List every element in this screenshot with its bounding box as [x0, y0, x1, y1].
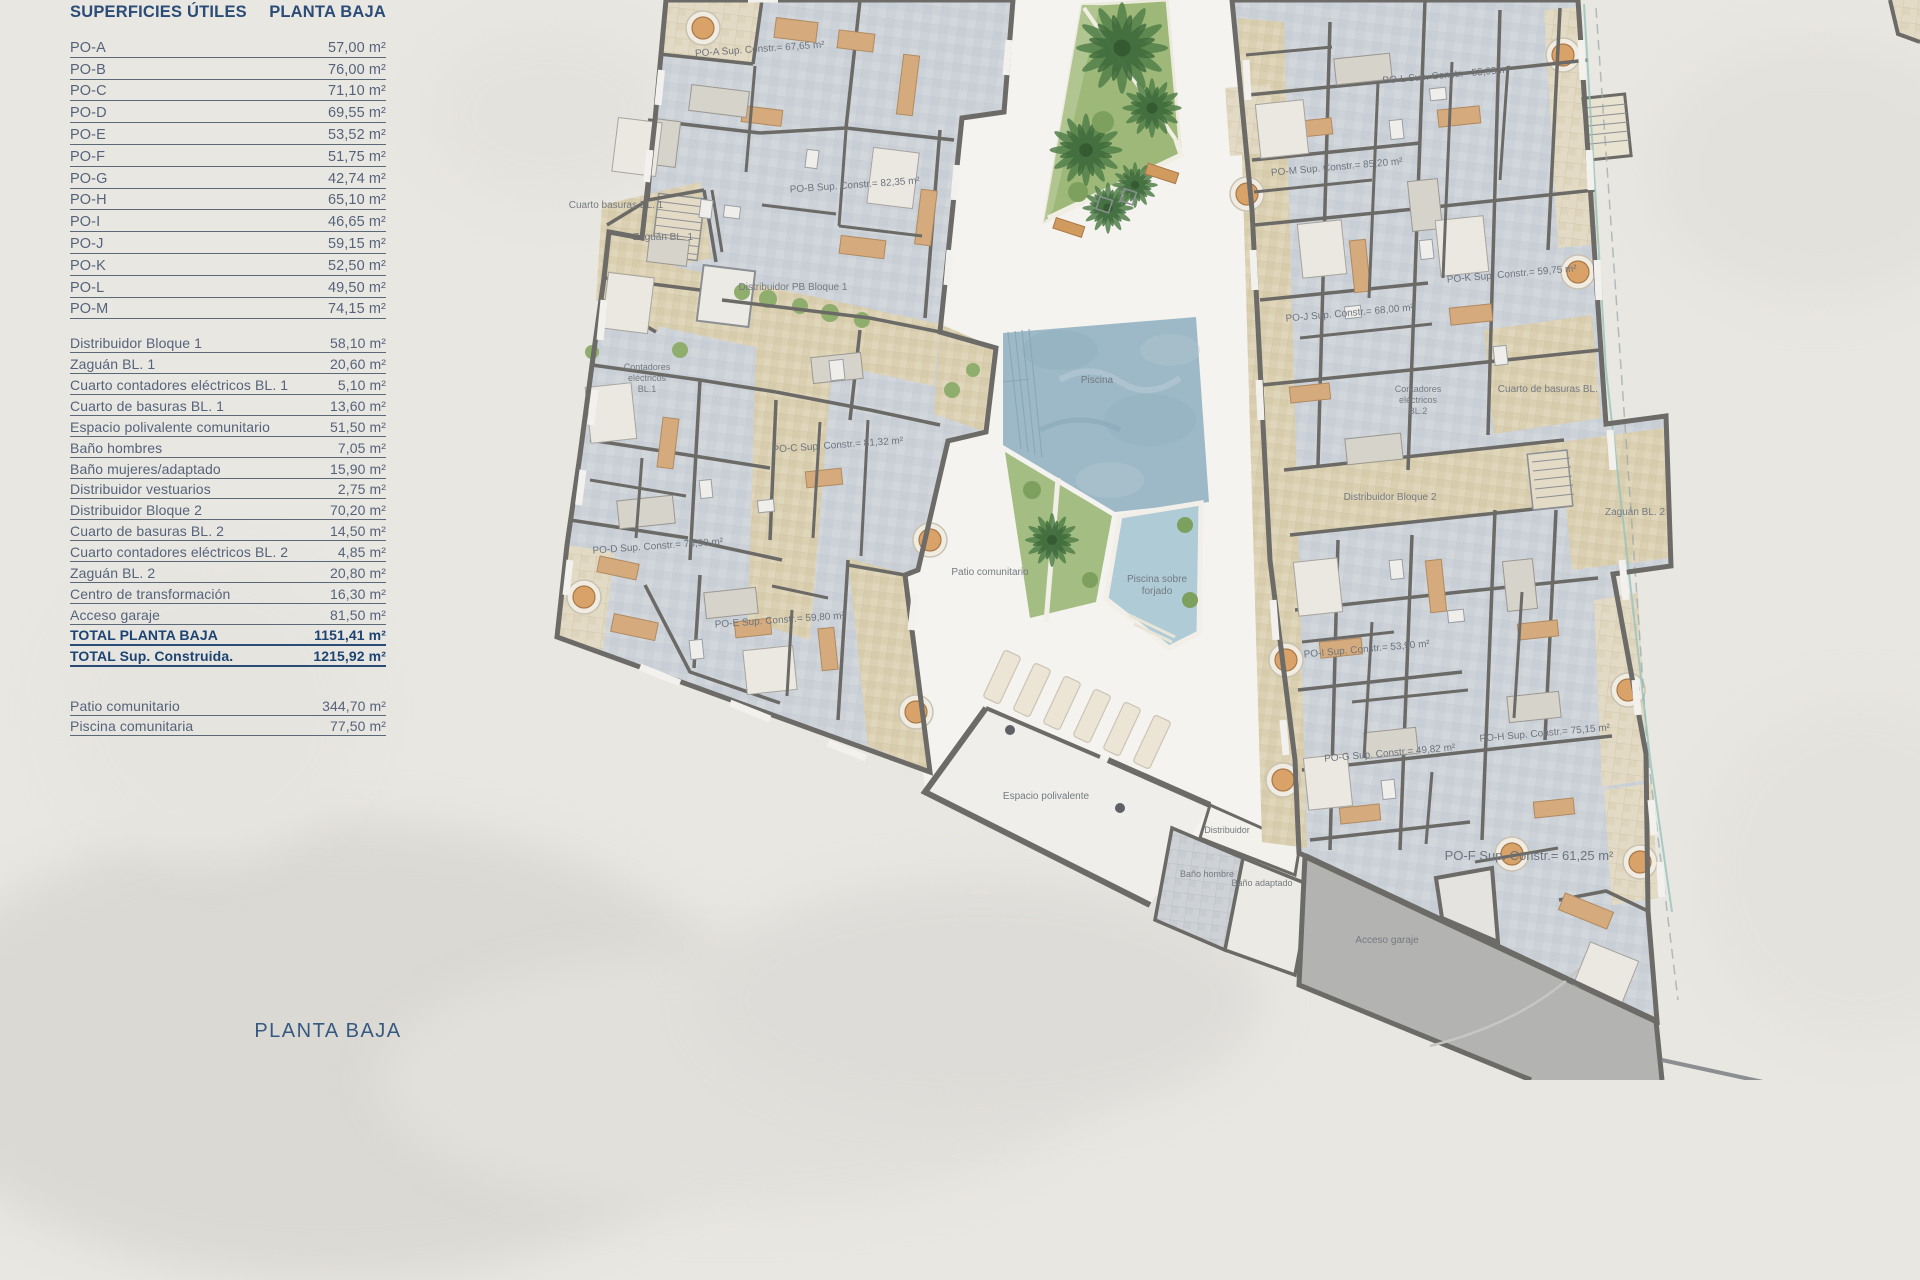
svg-text:PO-F Sup. Constr.= 61,25 m²: PO-F Sup. Constr.= 61,25 m² [1445, 848, 1614, 863]
svg-text:Distribuidor Bloque 2: Distribuidor Bloque 2 [1344, 492, 1437, 503]
svg-text:Contadores: Contadores [1395, 384, 1442, 394]
svg-text:Baño hombre: Baño hombre [1180, 869, 1234, 879]
svg-text:Zaguán BL. 2: Zaguán BL. 2 [1605, 507, 1665, 518]
svg-text:eléctricos: eléctricos [1399, 395, 1438, 405]
svg-text:BL.2: BL.2 [1409, 406, 1428, 416]
svg-text:eléctricos: eléctricos [628, 373, 667, 383]
svg-text:Piscina: Piscina [1081, 375, 1114, 386]
svg-text:Cuarto de basuras BL. 2: Cuarto de basuras BL. 2 [1498, 384, 1607, 395]
svg-text:Cuarto basuras BL. 1: Cuarto basuras BL. 1 [569, 200, 664, 211]
svg-text:BL.1: BL.1 [638, 384, 657, 394]
svg-text:Patio comunitario: Patio comunitario [951, 567, 1029, 578]
svg-text:Distribuidor PB Bloque 1: Distribuidor PB Bloque 1 [739, 282, 848, 293]
svg-text:Espacio polivalente: Espacio polivalente [1003, 791, 1090, 802]
svg-text:Acceso garaje: Acceso garaje [1355, 935, 1419, 946]
svg-text:Contadores: Contadores [624, 362, 671, 372]
svg-text:Piscina sobre: Piscina sobre [1127, 574, 1187, 585]
svg-text:Baño adaptado: Baño adaptado [1231, 878, 1292, 888]
svg-text:forjado: forjado [1142, 586, 1173, 597]
svg-text:Distribuidor: Distribuidor [1204, 825, 1250, 835]
